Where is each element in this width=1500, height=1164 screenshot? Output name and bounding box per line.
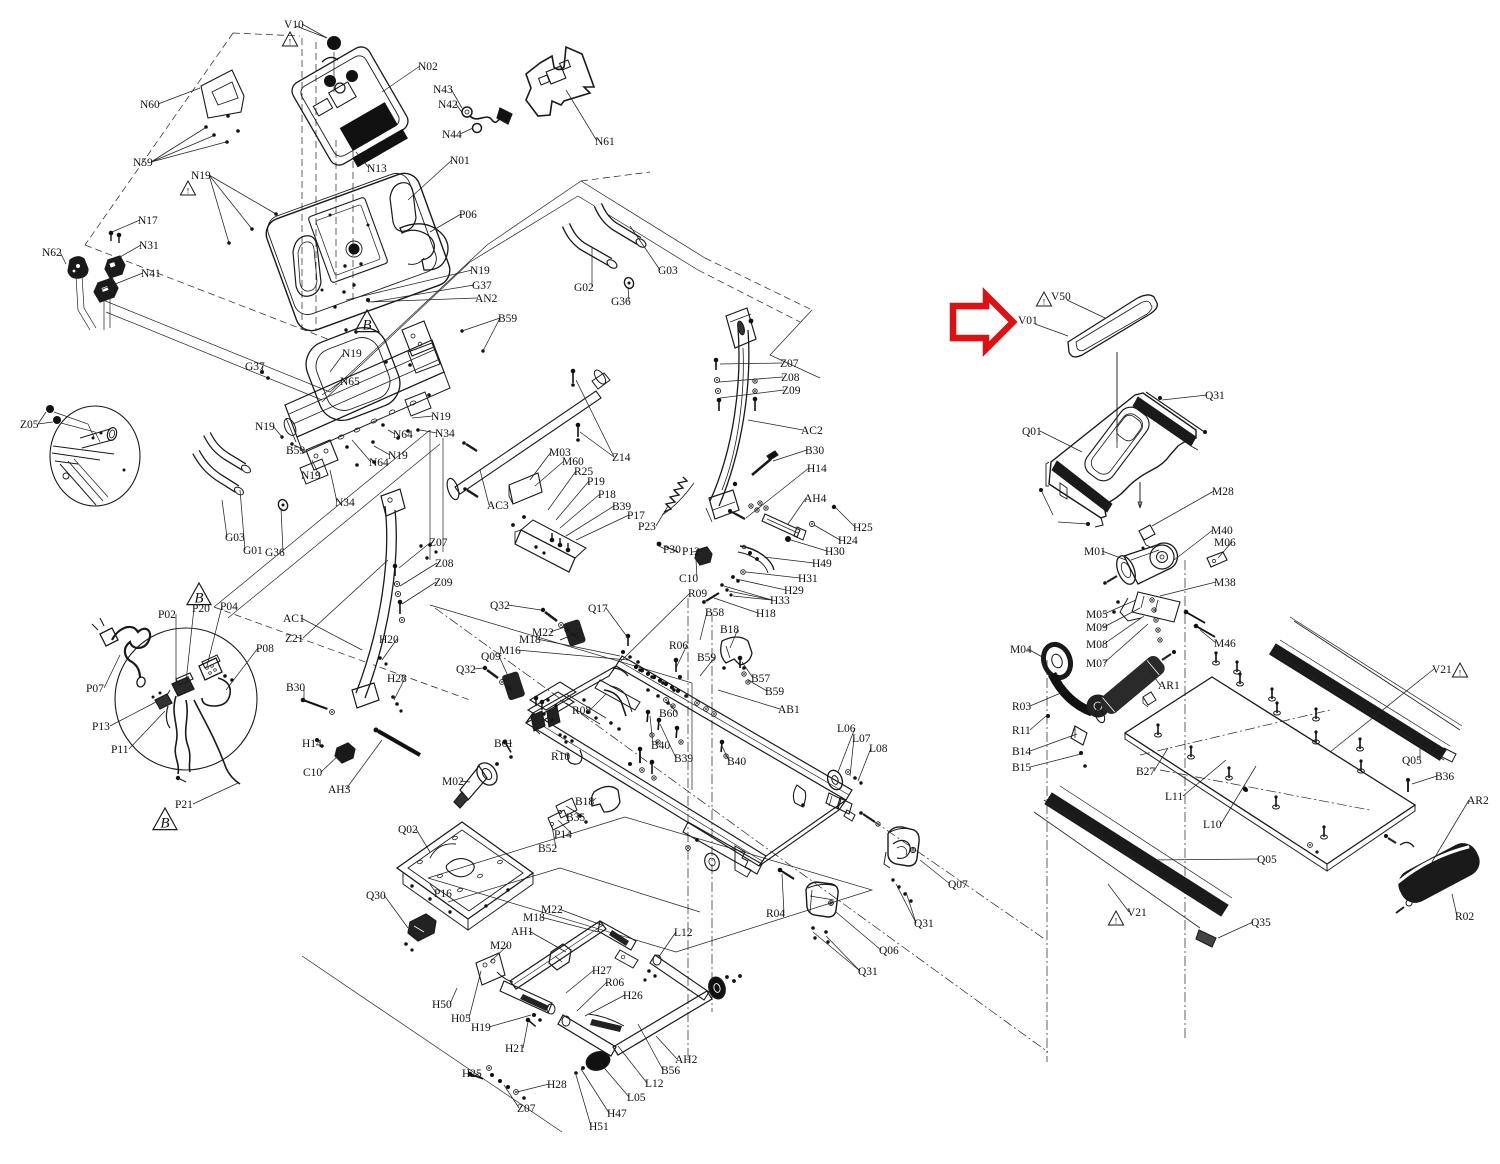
- svg-text:B58: B58: [705, 607, 724, 619]
- svg-text:M16: M16: [499, 645, 521, 657]
- svg-text:M07: M07: [1086, 658, 1108, 670]
- svg-text:AN2: AN2: [475, 293, 498, 305]
- svg-text:P02: P02: [158, 609, 176, 621]
- svg-text:L07: L07: [852, 733, 871, 745]
- svg-text:L12: L12: [674, 927, 693, 939]
- svg-text:C10: C10: [303, 767, 322, 779]
- svg-text:R06: R06: [669, 640, 688, 652]
- svg-text:R04: R04: [766, 908, 785, 920]
- svg-text:P21: P21: [175, 799, 193, 811]
- svg-text:G03: G03: [658, 265, 678, 277]
- svg-text:H47: H47: [607, 1108, 627, 1120]
- svg-text:AR2: AR2: [1467, 795, 1489, 807]
- svg-text:!: !: [187, 185, 190, 195]
- svg-text:P04: P04: [220, 601, 238, 613]
- svg-text:N19: N19: [255, 421, 275, 433]
- svg-text:H28: H28: [547, 1079, 567, 1091]
- svg-text:Q01: Q01: [1022, 426, 1042, 438]
- svg-text:M46: M46: [1214, 638, 1236, 650]
- svg-text:L08: L08: [869, 743, 888, 755]
- svg-text:Z07: Z07: [429, 537, 448, 549]
- svg-text:Q05: Q05: [1402, 755, 1422, 767]
- svg-text:V10: V10: [284, 19, 304, 31]
- svg-text:Z08: Z08: [781, 372, 800, 384]
- svg-text:N43: N43: [433, 84, 453, 96]
- svg-text:M05: M05: [1086, 609, 1108, 621]
- svg-text:B40: B40: [727, 756, 746, 768]
- svg-text:Q32: Q32: [490, 600, 510, 612]
- svg-text:AC3: AC3: [487, 500, 509, 512]
- svg-text:AR1: AR1: [1158, 680, 1180, 692]
- svg-text:N19: N19: [342, 348, 362, 360]
- svg-text:N64: N64: [369, 457, 389, 469]
- svg-text:Q09: Q09: [481, 651, 501, 663]
- svg-text:AB1: AB1: [778, 704, 800, 716]
- svg-text:M02: M02: [442, 776, 464, 788]
- svg-text:Q35: Q35: [1251, 917, 1271, 929]
- svg-text:B: B: [160, 815, 169, 831]
- svg-text:B60: B60: [659, 708, 678, 720]
- svg-text:Z05: Z05: [20, 419, 39, 431]
- svg-text:AH4: AH4: [804, 493, 827, 505]
- svg-text:P07: P07: [86, 683, 104, 695]
- svg-text:H14: H14: [807, 463, 827, 475]
- svg-text:Q31: Q31: [1205, 390, 1225, 402]
- svg-text:P12: P12: [682, 546, 700, 558]
- svg-text:H25: H25: [853, 522, 873, 534]
- svg-text:P14: P14: [554, 829, 572, 841]
- svg-text:P19: P19: [587, 476, 605, 488]
- svg-text:N19: N19: [301, 470, 321, 482]
- svg-text:R08: R08: [572, 705, 591, 717]
- svg-text:H25: H25: [462, 1068, 482, 1080]
- svg-text:C10: C10: [679, 573, 698, 585]
- svg-text:N19: N19: [191, 170, 211, 182]
- svg-text:P11: P11: [111, 744, 129, 756]
- svg-text:M18: M18: [523, 912, 545, 924]
- svg-text:N64: N64: [393, 429, 413, 441]
- svg-text:!: !: [1459, 667, 1462, 677]
- svg-text:P18: P18: [598, 489, 616, 501]
- svg-text:N31: N31: [139, 240, 159, 252]
- svg-text:N19: N19: [388, 450, 408, 462]
- svg-text:Q31: Q31: [858, 966, 878, 978]
- svg-text:H21: H21: [505, 1043, 525, 1055]
- svg-text:H30: H30: [825, 546, 845, 558]
- svg-text:B15: B15: [1012, 762, 1031, 774]
- svg-text:B59: B59: [765, 686, 784, 698]
- svg-text:P13: P13: [92, 721, 110, 733]
- svg-text:N34: N34: [335, 497, 355, 509]
- svg-text:N44: N44: [442, 129, 462, 141]
- svg-text:R10: R10: [551, 751, 570, 763]
- svg-text:H31: H31: [798, 573, 818, 585]
- svg-text:P08: P08: [256, 643, 274, 655]
- svg-text:AH3: AH3: [328, 784, 351, 796]
- svg-text:Z14: Z14: [612, 452, 631, 464]
- svg-text:R09: R09: [688, 588, 707, 600]
- svg-text:B59: B59: [498, 313, 517, 325]
- svg-text:H26: H26: [623, 990, 643, 1002]
- svg-text:N17: N17: [138, 215, 158, 227]
- svg-text:!: !: [1043, 296, 1046, 306]
- svg-text:Z09: Z09: [434, 577, 453, 589]
- svg-text:G01: G01: [243, 545, 263, 557]
- svg-text:Q07: Q07: [948, 879, 968, 891]
- svg-text:B56: B56: [661, 1065, 680, 1077]
- svg-text:N61: N61: [595, 136, 615, 148]
- svg-text:Q17: Q17: [588, 603, 608, 615]
- svg-text:H18: H18: [756, 608, 776, 620]
- svg-text:R06: R06: [605, 977, 624, 989]
- svg-text:N34: N34: [435, 428, 455, 440]
- svg-text:B: B: [362, 317, 371, 333]
- svg-text:B40: B40: [651, 740, 670, 752]
- svg-text:!: !: [289, 36, 292, 46]
- svg-text:N01: N01: [450, 155, 470, 167]
- svg-text:M40: M40: [1211, 525, 1233, 537]
- svg-text:Z08: Z08: [435, 558, 454, 570]
- svg-text:AH1: AH1: [511, 926, 534, 938]
- svg-text:M06: M06: [1214, 537, 1236, 549]
- svg-text:Z09: Z09: [782, 385, 801, 397]
- svg-text:Z07: Z07: [780, 358, 799, 370]
- svg-text:G03: G03: [225, 532, 245, 544]
- svg-text:M38: M38: [1214, 577, 1236, 589]
- svg-text:G02: G02: [574, 282, 594, 294]
- svg-text:P23: P23: [638, 521, 656, 533]
- svg-text:R11: R11: [1012, 725, 1031, 737]
- svg-text:B39: B39: [674, 753, 693, 765]
- svg-text:R03: R03: [1012, 701, 1031, 713]
- svg-text:G36: G36: [611, 296, 631, 308]
- svg-text:Q05: Q05: [1257, 854, 1277, 866]
- svg-text:!: !: [1115, 915, 1118, 925]
- svg-text:N41: N41: [141, 268, 161, 280]
- svg-text:N19: N19: [470, 265, 490, 277]
- svg-text:N42: N42: [438, 99, 458, 111]
- svg-text:B59: B59: [286, 445, 305, 457]
- svg-text:L11: L11: [1165, 791, 1183, 803]
- svg-text:N02: N02: [418, 61, 438, 73]
- svg-text:Q31: Q31: [914, 918, 934, 930]
- svg-text:B14: B14: [1012, 746, 1031, 758]
- svg-text:AC1: AC1: [283, 613, 305, 625]
- svg-text:N60: N60: [140, 99, 160, 111]
- svg-text:H50: H50: [432, 999, 452, 1011]
- svg-text:M01: M01: [1084, 546, 1106, 558]
- svg-text:B52: B52: [538, 843, 557, 855]
- svg-text:L10: L10: [1203, 819, 1222, 831]
- svg-text:H20: H20: [379, 634, 399, 646]
- svg-text:V01: V01: [1018, 315, 1038, 327]
- svg-text:H05: H05: [451, 1013, 471, 1025]
- svg-text:V21: V21: [1127, 907, 1147, 919]
- svg-text:Q02: Q02: [398, 824, 418, 836]
- svg-text:N59: N59: [133, 157, 153, 169]
- svg-text:Q30: Q30: [366, 890, 386, 902]
- svg-text:Z07: Z07: [517, 1103, 536, 1115]
- svg-text:B59: B59: [697, 652, 716, 664]
- svg-text:H14: H14: [302, 738, 322, 750]
- svg-text:P16: P16: [434, 888, 452, 900]
- svg-text:H49: H49: [812, 558, 832, 570]
- svg-text:B18: B18: [575, 796, 594, 808]
- svg-text:M09: M09: [1086, 622, 1108, 634]
- svg-text:AC2: AC2: [801, 425, 823, 437]
- svg-text:B35: B35: [566, 812, 585, 824]
- svg-text:L05: L05: [627, 1092, 646, 1104]
- svg-text:M08: M08: [1086, 639, 1108, 651]
- svg-text:H19: H19: [471, 1022, 491, 1034]
- svg-text:H33: H33: [770, 595, 790, 607]
- svg-text:P06: P06: [459, 209, 477, 221]
- svg-text:N13: N13: [367, 163, 387, 175]
- svg-text:V21: V21: [1432, 664, 1452, 676]
- svg-text:B36: B36: [1435, 771, 1454, 783]
- svg-text:G36: G36: [265, 547, 285, 559]
- svg-text:G37: G37: [245, 361, 265, 373]
- svg-text:H51: H51: [589, 1121, 609, 1133]
- svg-text:B27: B27: [1136, 766, 1155, 778]
- svg-text:B30: B30: [286, 682, 305, 694]
- svg-text:Z21: Z21: [285, 633, 304, 645]
- svg-text:M04: M04: [1010, 644, 1032, 656]
- svg-text:P20: P20: [192, 603, 210, 615]
- svg-text:M28: M28: [1212, 486, 1234, 498]
- svg-text:M18: M18: [519, 634, 541, 646]
- svg-text:R02: R02: [1455, 911, 1474, 923]
- svg-text:B18: B18: [720, 624, 739, 636]
- svg-text:V50: V50: [1051, 291, 1071, 303]
- svg-text:B57: B57: [751, 673, 770, 685]
- svg-text:N65: N65: [340, 376, 360, 388]
- svg-text:G37: G37: [472, 280, 492, 292]
- svg-text:B61: B61: [494, 738, 513, 750]
- svg-text:H27: H27: [592, 965, 612, 977]
- svg-text:B30: B30: [805, 445, 824, 457]
- svg-text:M20: M20: [490, 940, 512, 952]
- svg-text:Q32: Q32: [456, 664, 476, 676]
- svg-text:Q06: Q06: [879, 945, 899, 957]
- svg-text:N19: N19: [431, 411, 451, 423]
- svg-text:L12: L12: [645, 1078, 664, 1090]
- svg-text:P30: P30: [663, 544, 681, 556]
- svg-text:H28: H28: [387, 673, 407, 685]
- svg-text:N62: N62: [42, 247, 62, 259]
